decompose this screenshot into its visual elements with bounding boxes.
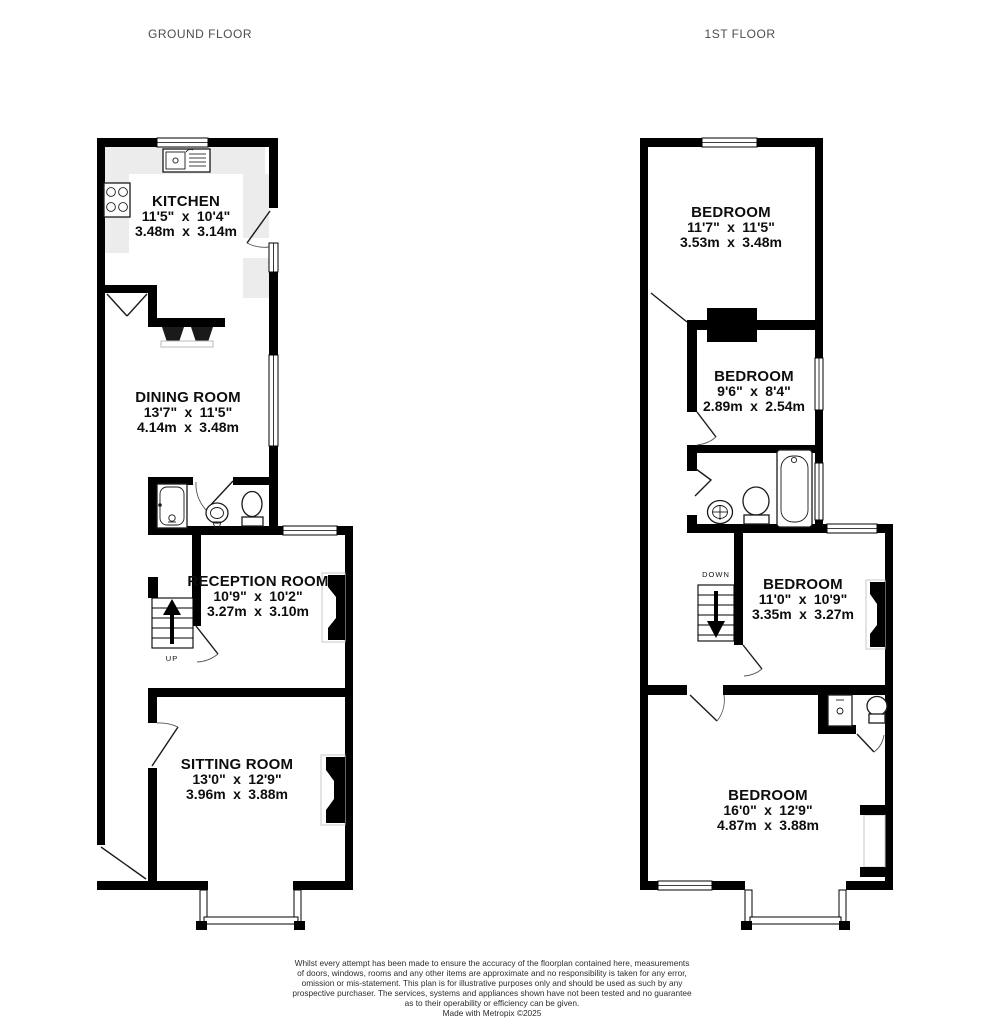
stairs-up-label: UP <box>166 654 178 663</box>
disclaimer-credit: Made with Metropix ©2025 <box>443 1008 542 1018</box>
bath-fixture <box>777 450 812 527</box>
ground-floor-title: GROUND FLOOR <box>148 27 252 41</box>
sitting-room-metric: 3.96m x 3.88m <box>186 786 288 802</box>
kitchen-metric: 3.48m x 3.14m <box>135 223 237 239</box>
disclaimer-line-2: of doors, windows, rooms and any other i… <box>297 968 687 978</box>
bedroom4-metric: 4.87m x 3.88m <box>717 817 819 833</box>
bedroom4-alcove <box>860 805 885 877</box>
breakfast-bar-stools <box>161 327 213 347</box>
first-floor-plan: DOWN BEDROOM 11'7" x 11'5" 3.53m x 3.48m… <box>640 138 893 930</box>
disclaimer-line-1: Whilst every attempt has been made to en… <box>295 958 690 968</box>
disclaimer-line-3: omission or mis-statement. This plan is … <box>302 978 684 988</box>
bedroom1-metric: 3.53m x 3.48m <box>680 234 782 250</box>
disclaimer-line-4: prospective purchaser. The services, sys… <box>292 988 692 998</box>
floorplan-page: GROUND FLOOR 1ST FLOOR <box>0 0 991 1024</box>
sitting-chimney-breast <box>321 755 345 825</box>
bedroom3-metric: 3.35m x 3.27m <box>752 606 854 622</box>
stairs-down-label: DOWN <box>702 570 730 579</box>
bedroom3-imperial: 11'0" x 10'9" <box>759 591 847 607</box>
ensuite-toilet-fixture <box>867 697 887 724</box>
toilet-fixture-ground <box>242 492 263 527</box>
ground-floor-plan: UP KITCHEN 11'5" x 10'4" 3.48m x 3.14m D… <box>97 138 353 930</box>
first-floor-title: 1ST FLOOR <box>705 27 776 41</box>
floorplan-canvas: GROUND FLOOR 1ST FLOOR <box>0 0 991 1024</box>
reception-room-imperial: 10'9" x 10'2" <box>213 588 302 604</box>
dining-room-imperial: 13'7" x 11'5" <box>144 404 232 420</box>
disclaimer-line-5: as to their operability or efficiency ca… <box>405 998 580 1008</box>
ground-floor-bay-window <box>196 890 305 930</box>
bedroom3-chimney-breast <box>866 580 885 649</box>
reception-room-metric: 3.27m x 3.10m <box>207 603 309 619</box>
bedroom1-imperial: 11'7" x 11'5" <box>687 219 775 235</box>
sitting-room-imperial: 13'0" x 12'9" <box>192 771 281 787</box>
basin-fixture-ground <box>206 503 228 528</box>
toilet-fixture-first <box>743 487 769 524</box>
hob-fixture <box>104 183 130 217</box>
shower-fixture <box>157 484 187 528</box>
first-floor-walls <box>640 138 893 890</box>
disclaimer: Whilst every attempt has been made to en… <box>292 958 692 1018</box>
dining-room-metric: 4.14m x 3.48m <box>137 419 239 435</box>
kitchen-sink-fixture <box>163 149 210 172</box>
stairs-up: UP <box>152 598 193 663</box>
first-floor-windows <box>658 138 877 890</box>
bedroom-chimney-breast <box>707 308 757 342</box>
stairs-down: DOWN <box>698 570 734 641</box>
bedroom4-imperial: 16'0" x 12'9" <box>723 802 812 818</box>
first-floor-bay-window <box>741 890 850 930</box>
basin-fixture-first <box>708 501 733 524</box>
kitchen-imperial: 11'5" x 10'4" <box>142 208 230 224</box>
bedroom2-imperial: 9'6" x 8'4" <box>717 383 791 399</box>
bedroom2-metric: 2.89m x 2.54m <box>703 398 805 414</box>
ensuite-sink-fixture <box>828 695 852 726</box>
